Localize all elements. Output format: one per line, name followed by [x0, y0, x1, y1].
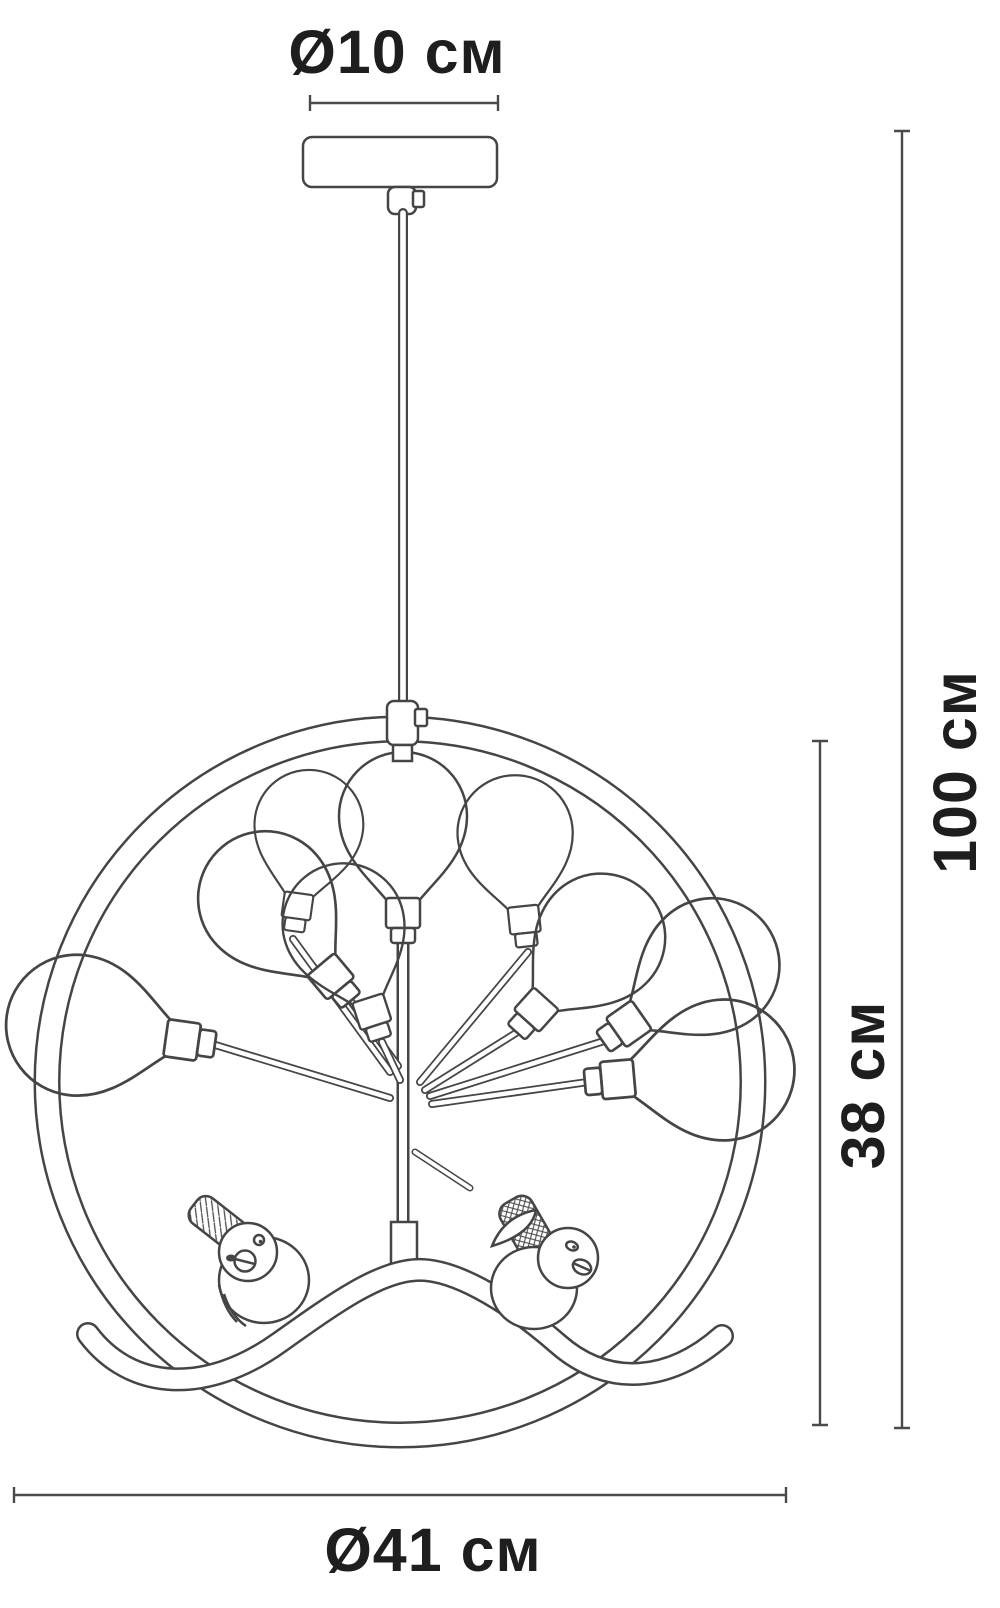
- fixture-diameter-label: Ø41 см: [324, 1515, 541, 1585]
- glass-bulb: [240, 763, 370, 939]
- canopy-diameter-label: Ø10 см: [288, 17, 505, 87]
- dim-line-overall-height: [894, 131, 910, 1428]
- fixture-height-label: 38 см: [828, 1001, 898, 1170]
- dimension-diagram: Ø10 см 100 см 38 см Ø41 см: [0, 0, 1000, 1608]
- connector-screw: [415, 709, 427, 726]
- chandelier-line-drawing: [0, 0, 1000, 1608]
- bird-head: [538, 1228, 598, 1288]
- ceiling-canopy: [303, 137, 497, 214]
- dim-line-canopy-diameter: [310, 95, 498, 111]
- dim-line-fixture-height: [812, 741, 828, 1425]
- branch-arms: [212, 939, 604, 1268]
- canopy-screw: [413, 191, 424, 207]
- bird-figurine-left: [184, 1192, 309, 1326]
- glass-bulb: [452, 770, 585, 953]
- bird-eye: [254, 1235, 264, 1245]
- bird-figurine-right: [491, 1191, 598, 1329]
- dim-line-fixture-diameter: [14, 1487, 786, 1503]
- overall-height-label: 100 см: [920, 670, 990, 874]
- trunk-collar: [391, 1222, 417, 1264]
